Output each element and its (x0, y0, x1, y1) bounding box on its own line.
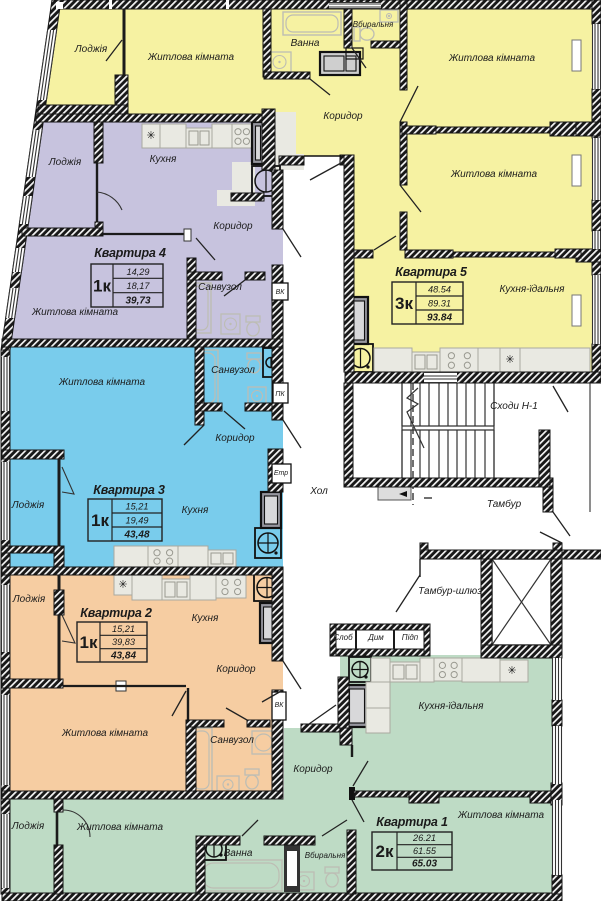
svg-text:Лоджія: Лоджія (11, 500, 45, 511)
svg-text:✳: ✳ (507, 665, 516, 677)
svg-text:Коридор: Коридор (216, 664, 256, 675)
svg-text:Квартира 4: Квартира 4 (94, 246, 166, 260)
svg-text:93.84: 93.84 (427, 313, 452, 324)
svg-text:1к: 1к (80, 633, 98, 652)
svg-text:1к: 1к (91, 511, 109, 530)
svg-text:Санвузол: Санвузол (198, 282, 242, 293)
svg-text:19,49: 19,49 (126, 516, 149, 526)
svg-text:Етр: Етр (274, 470, 288, 477)
svg-text:Житлова кімната: Житлова кімната (61, 728, 148, 739)
svg-text:Квартира 1: Квартира 1 (376, 815, 448, 829)
svg-text:Лоджія: Лоджія (11, 821, 45, 832)
svg-text:Тамбур-шлюз: Тамбур-шлюз (418, 585, 482, 597)
svg-text:Житлова кімната: Житлова кімната (76, 822, 163, 833)
svg-text:26.21: 26.21 (412, 833, 436, 843)
svg-text:Коридор: Коридор (293, 764, 333, 775)
svg-text:✳: ✳ (146, 130, 155, 142)
svg-text:Слоб: Слоб (333, 633, 353, 642)
svg-text:89.31: 89.31 (428, 299, 451, 309)
svg-text:✳: ✳ (118, 579, 127, 591)
svg-text:Вбиральня: Вбиральня (305, 851, 346, 860)
svg-text:Тамбур: Тамбур (487, 498, 522, 510)
svg-text:48.54: 48.54 (428, 285, 451, 295)
svg-text:Житлова кімната: Житлова кімната (31, 307, 118, 318)
svg-text:2к: 2к (376, 842, 394, 861)
svg-text:Вбиральня: Вбиральня (353, 20, 394, 29)
svg-text:Квартира 5: Квартира 5 (395, 265, 468, 279)
svg-text:43,84: 43,84 (110, 651, 136, 662)
svg-text:61.55: 61.55 (413, 846, 437, 856)
svg-text:Ванна: Ванна (224, 848, 253, 859)
svg-text:65.03: 65.03 (412, 859, 437, 870)
svg-text:Житлова кімната: Житлова кімната (457, 810, 544, 821)
svg-text:Кухня-їдальня: Кухня-їдальня (500, 284, 566, 295)
svg-text:39,73: 39,73 (125, 296, 150, 307)
svg-text:Дим: Дим (367, 633, 384, 642)
svg-text:Кухня: Кухня (192, 613, 219, 624)
svg-text:Коридор: Коридор (213, 221, 253, 232)
svg-text:Кухня: Кухня (182, 505, 209, 516)
svg-text:ВК: ВК (276, 289, 286, 296)
svg-text:✳: ✳ (505, 354, 514, 366)
svg-text:Квартира 3: Квартира 3 (93, 483, 165, 497)
svg-text:Санвузол: Санвузол (211, 365, 255, 376)
svg-text:43,48: 43,48 (123, 530, 149, 541)
svg-text:Лоджія: Лоджія (12, 594, 46, 605)
svg-text:Сходи Н-1: Сходи Н-1 (490, 401, 538, 412)
svg-text:Житлова кімната: Житлова кімната (448, 53, 535, 64)
svg-text:1к: 1к (93, 277, 111, 296)
svg-text:Житлова кімната: Житлова кімната (450, 169, 537, 180)
svg-text:Підп: Підп (402, 633, 419, 642)
svg-text:Хол: Хол (309, 486, 328, 497)
svg-text:Кухня: Кухня (150, 154, 177, 165)
svg-text:Квартира 2: Квартира 2 (80, 606, 152, 620)
svg-text:39,83: 39,83 (112, 637, 136, 647)
svg-text:Лоджія: Лоджія (74, 44, 108, 55)
svg-text:14,29: 14,29 (127, 267, 150, 277)
svg-text:Ванна: Ванна (291, 38, 320, 49)
svg-text:Житлова кімната: Житлова кімната (58, 377, 145, 388)
svg-text:Коридор: Коридор (323, 111, 363, 122)
svg-text:Житлова кімната: Житлова кімната (147, 52, 234, 63)
svg-text:Санвузол: Санвузол (210, 735, 254, 746)
svg-text:3к: 3к (395, 294, 413, 313)
svg-text:Лоджія: Лоджія (48, 157, 82, 168)
svg-text:Кухня-їдальня: Кухня-їдальня (419, 701, 485, 712)
svg-text:15,21: 15,21 (126, 502, 149, 512)
svg-text:18,17: 18,17 (127, 281, 151, 291)
svg-text:ВК: ВК (275, 702, 285, 709)
svg-text:ПК: ПК (275, 391, 285, 398)
svg-text:Коридор: Коридор (215, 433, 255, 444)
svg-text:15,21: 15,21 (112, 624, 135, 634)
